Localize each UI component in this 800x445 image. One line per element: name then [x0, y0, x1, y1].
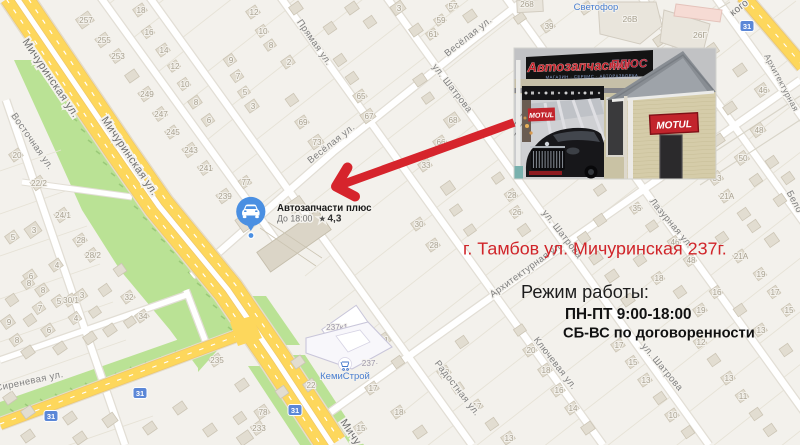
svg-text:13: 13 — [724, 374, 734, 383]
svg-text:17: 17 — [368, 384, 378, 393]
svg-text:3: 3 — [80, 291, 85, 300]
svg-text:67: 67 — [364, 112, 374, 121]
svg-text:18: 18 — [136, 6, 146, 15]
svg-text:26В: 26В — [622, 14, 637, 24]
svg-text:17: 17 — [770, 288, 780, 297]
svg-text:6: 6 — [47, 326, 52, 335]
svg-text:ПН-ПТ 9:00-18:00: ПН-ПТ 9:00-18:00 — [565, 306, 692, 323]
svg-text:21А: 21А — [734, 252, 749, 261]
svg-text:10: 10 — [180, 80, 190, 89]
svg-text:59: 59 — [436, 16, 446, 25]
svg-text:г. Тамбов ул. Мичуринская 237г: г. Тамбов ул. Мичуринская 237г. — [463, 239, 727, 259]
svg-text:50: 50 — [738, 154, 748, 163]
svg-text:16: 16 — [554, 386, 564, 395]
svg-text:3: 3 — [251, 102, 256, 111]
svg-text:245: 245 — [166, 128, 180, 137]
svg-text:8: 8 — [194, 98, 199, 107]
svg-text:268: 268 — [520, 0, 534, 9]
svg-text:233: 233 — [252, 424, 266, 433]
svg-text:До 18:00: До 18:00 — [277, 214, 313, 224]
svg-text:10: 10 — [258, 27, 268, 36]
svg-text:7: 7 — [236, 72, 241, 81]
svg-text:257: 257 — [79, 16, 93, 25]
svg-text:19: 19 — [756, 270, 766, 279]
svg-text:30: 30 — [414, 220, 424, 229]
svg-text:8: 8 — [41, 286, 46, 295]
svg-text:12: 12 — [170, 62, 180, 71]
svg-text:4,3: 4,3 — [328, 214, 342, 225]
svg-text:13: 13 — [504, 434, 514, 443]
svg-text:69: 69 — [298, 118, 308, 127]
svg-text:3: 3 — [397, 4, 402, 13]
svg-text:14: 14 — [159, 46, 169, 55]
svg-text:9: 9 — [229, 56, 234, 65]
svg-text:78: 78 — [258, 408, 268, 417]
svg-text:ПЛЮС: ПЛЮС — [611, 58, 648, 71]
svg-text:16: 16 — [712, 288, 722, 297]
svg-text:65: 65 — [356, 92, 366, 101]
svg-text:10: 10 — [668, 411, 678, 420]
svg-text:18: 18 — [394, 408, 404, 417]
svg-text:46: 46 — [758, 86, 768, 95]
svg-text:7: 7 — [38, 304, 43, 313]
svg-text:77: 77 — [241, 178, 251, 187]
svg-text:2: 2 — [287, 58, 292, 67]
svg-text:32: 32 — [124, 293, 134, 302]
svg-text:20: 20 — [526, 346, 536, 355]
svg-text:3: 3 — [32, 226, 37, 235]
svg-text:8: 8 — [269, 41, 274, 50]
svg-text:26Г: 26Г — [693, 30, 707, 40]
svg-text:4: 4 — [55, 261, 60, 270]
svg-text:18: 18 — [654, 274, 664, 283]
svg-text:14: 14 — [568, 404, 578, 413]
svg-text:247: 247 — [154, 110, 168, 119]
svg-text:11: 11 — [739, 392, 748, 401]
svg-text:26: 26 — [512, 208, 522, 217]
svg-text:15: 15 — [628, 358, 638, 367]
svg-text:8: 8 — [27, 279, 32, 288]
svg-text:MOTUL: MOTUL — [529, 112, 554, 120]
svg-text:КемиСтрой: КемиСтрой — [320, 371, 370, 382]
svg-text:28: 28 — [76, 236, 86, 245]
svg-text:28/2: 28/2 — [85, 251, 101, 260]
svg-text:31: 31 — [136, 389, 144, 398]
svg-text:68: 68 — [448, 116, 458, 125]
svg-text:235: 235 — [210, 356, 224, 365]
svg-text:СБ-ВС по договоренности: СБ-ВС по договоренности — [563, 326, 755, 342]
svg-text:★: ★ — [319, 214, 327, 224]
svg-text:39: 39 — [544, 22, 554, 31]
svg-text:5: 5 — [57, 297, 62, 306]
svg-text:13: 13 — [641, 376, 651, 385]
svg-text:5: 5 — [11, 233, 16, 242]
svg-text:30/1: 30/1 — [63, 296, 79, 305]
svg-text:34: 34 — [138, 312, 148, 321]
svg-text:28: 28 — [429, 241, 439, 250]
svg-text:57: 57 — [448, 2, 458, 11]
svg-text:31: 31 — [47, 412, 55, 421]
svg-text:61: 61 — [428, 30, 438, 39]
svg-text:12: 12 — [249, 8, 259, 17]
svg-text:19: 19 — [696, 306, 706, 315]
svg-text:24/1: 24/1 — [55, 211, 71, 220]
svg-text:48: 48 — [754, 126, 764, 135]
svg-text:241: 241 — [199, 164, 213, 173]
svg-text:5: 5 — [243, 88, 248, 97]
svg-text:MOTUL: MOTUL — [656, 119, 692, 132]
svg-text:Режим работы:: Режим работы: — [521, 282, 649, 302]
svg-text:33: 33 — [421, 161, 431, 170]
svg-text:6: 6 — [207, 116, 212, 125]
svg-text:253: 253 — [111, 52, 125, 61]
svg-text:249: 249 — [140, 90, 154, 99]
svg-text:237·: 237· — [362, 359, 378, 368]
svg-text:35: 35 — [632, 204, 642, 213]
svg-text:16: 16 — [144, 28, 154, 37]
svg-text:31: 31 — [743, 22, 751, 31]
svg-text:4: 4 — [74, 314, 79, 323]
svg-text:22/2: 22/2 — [31, 179, 47, 188]
svg-text:22: 22 — [306, 381, 316, 390]
svg-text:255: 255 — [97, 36, 111, 45]
svg-text:8: 8 — [15, 336, 20, 345]
svg-text:31: 31 — [291, 406, 299, 415]
svg-text:13: 13 — [756, 326, 766, 335]
svg-text:Светофор: Светофор — [574, 2, 619, 13]
svg-text:20: 20 — [12, 151, 22, 160]
svg-text:239: 239 — [218, 192, 232, 201]
svg-text:21А: 21А — [720, 192, 735, 201]
svg-text:Автозапчасти плюс: Автозапчасти плюс — [277, 203, 372, 214]
svg-text:9: 9 — [7, 318, 12, 327]
svg-text:15: 15 — [784, 306, 794, 315]
svg-text:243: 243 — [184, 146, 198, 155]
svg-text:28: 28 — [507, 191, 517, 200]
svg-text:18: 18 — [541, 366, 551, 375]
svg-text:17: 17 — [614, 341, 624, 350]
